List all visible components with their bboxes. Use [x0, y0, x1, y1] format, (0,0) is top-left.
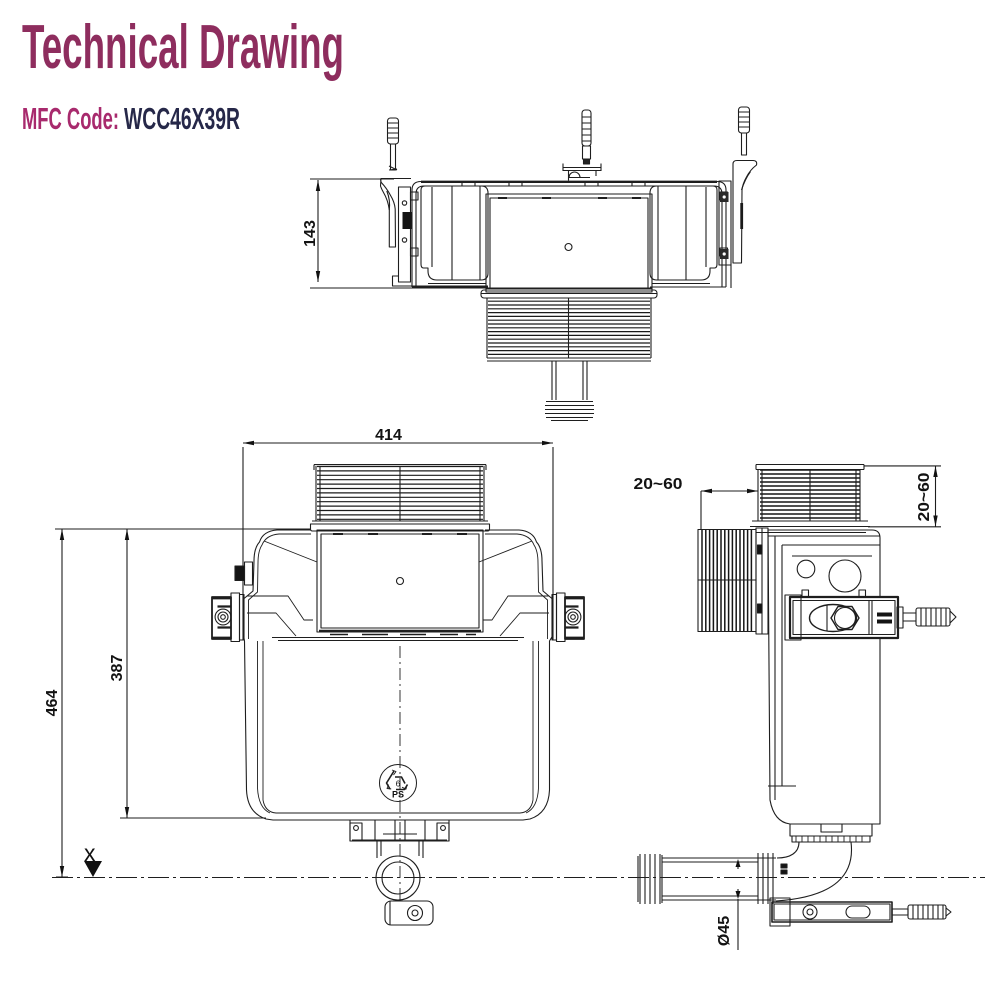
svg-text:20~60: 20~60	[634, 476, 683, 493]
svg-text:464: 464	[44, 690, 61, 717]
svg-text:20~60: 20~60	[916, 472, 933, 521]
svg-text:WCC46X39R: WCC46X39R	[124, 101, 240, 136]
svg-text:MFC Code:: MFC Code:	[22, 101, 119, 136]
svg-text:143: 143	[302, 220, 319, 247]
svg-text:414: 414	[375, 427, 402, 444]
svg-text:Ø45: Ø45	[716, 916, 733, 946]
svg-text:387: 387	[109, 655, 126, 682]
svg-text:PS: PS	[392, 790, 404, 800]
svg-text:Technical Drawing: Technical Drawing	[22, 13, 344, 82]
svg-text:6: 6	[396, 779, 401, 789]
